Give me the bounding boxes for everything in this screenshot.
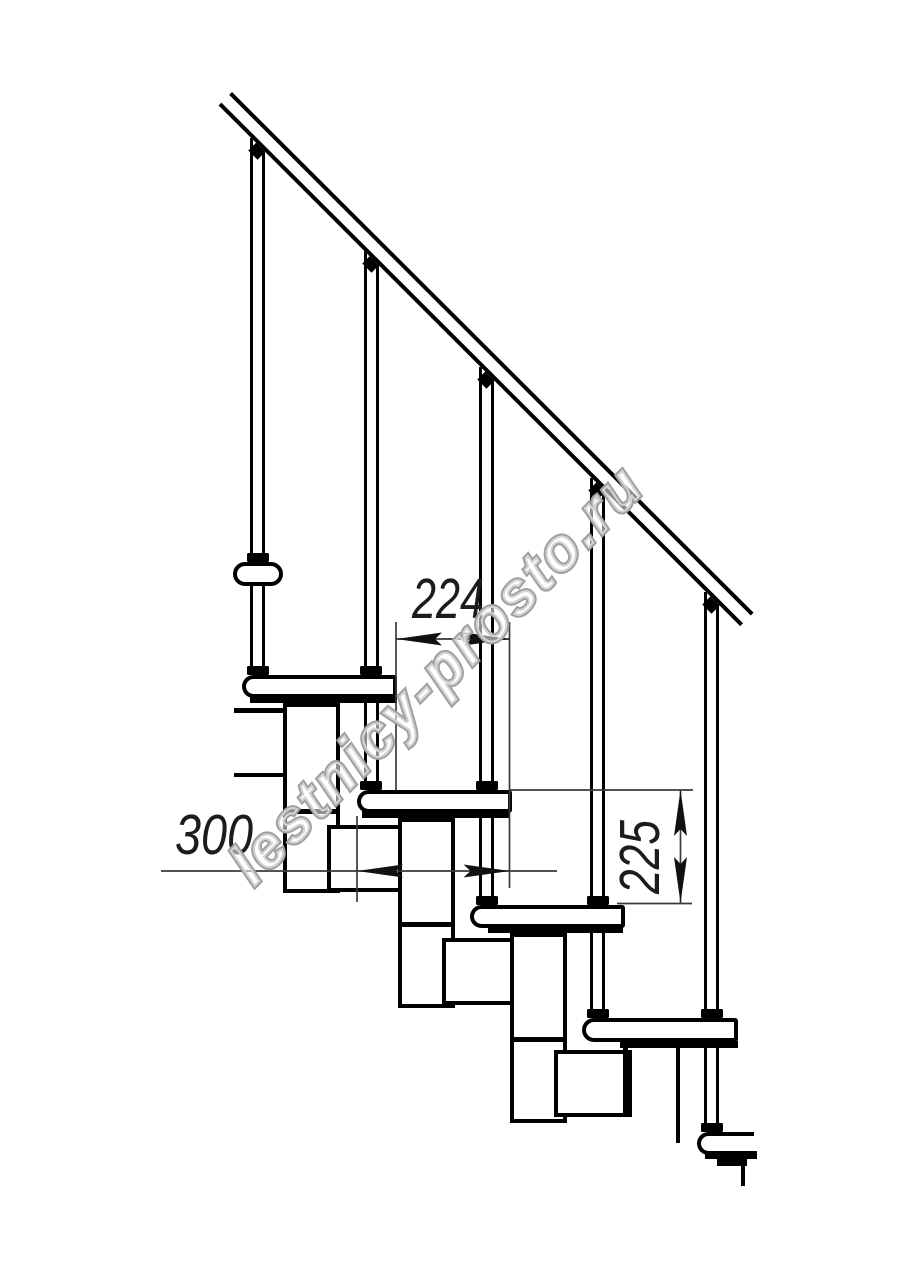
watermark-text: lestnicy-prosto.ru — [216, 451, 657, 897]
staircase-technical-drawing: 224 300 225 lestnicy-prosto.ru — [0, 0, 914, 1280]
watermark-layer: lestnicy-prosto.ru — [0, 0, 914, 1280]
